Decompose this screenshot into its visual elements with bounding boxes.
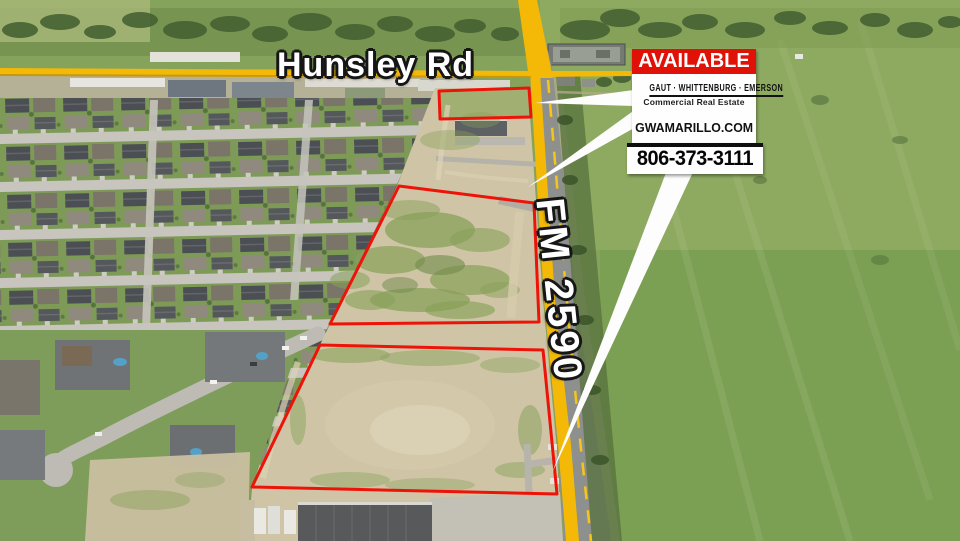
broker-sign: AVAILABLE GAUT · WHITTENBURG · EMERSON C… xyxy=(632,49,756,145)
warehouse-building xyxy=(298,505,432,541)
available-banner: AVAILABLE xyxy=(632,49,756,74)
aerial-photo-scene xyxy=(0,0,960,541)
swimming-pool xyxy=(113,358,127,366)
parked-rv xyxy=(254,508,266,534)
fenced-compound xyxy=(548,44,625,65)
hunsley-rd-label: Hunsley Rd xyxy=(277,46,474,85)
phone-number: 806-373-3111 xyxy=(630,147,759,170)
phone-panel: 806-373-3111 xyxy=(627,143,763,174)
commercial-building xyxy=(150,52,240,62)
parked-car xyxy=(300,336,307,340)
brokerage-name-text: GAUT · WHITTENBURG · EMERSON xyxy=(649,83,783,97)
farm-building xyxy=(795,54,803,59)
website-text: GWAMARILLO.COM xyxy=(635,120,753,135)
brokerage-name: GAUT · WHITTENBURG · EMERSON xyxy=(649,83,738,94)
brokerage-tagline: Commercial Real Estate xyxy=(632,97,756,107)
aerial-photo: Hunsley Rd FM 2590 AVAILABLE GAUT · WHIT… xyxy=(0,0,960,541)
